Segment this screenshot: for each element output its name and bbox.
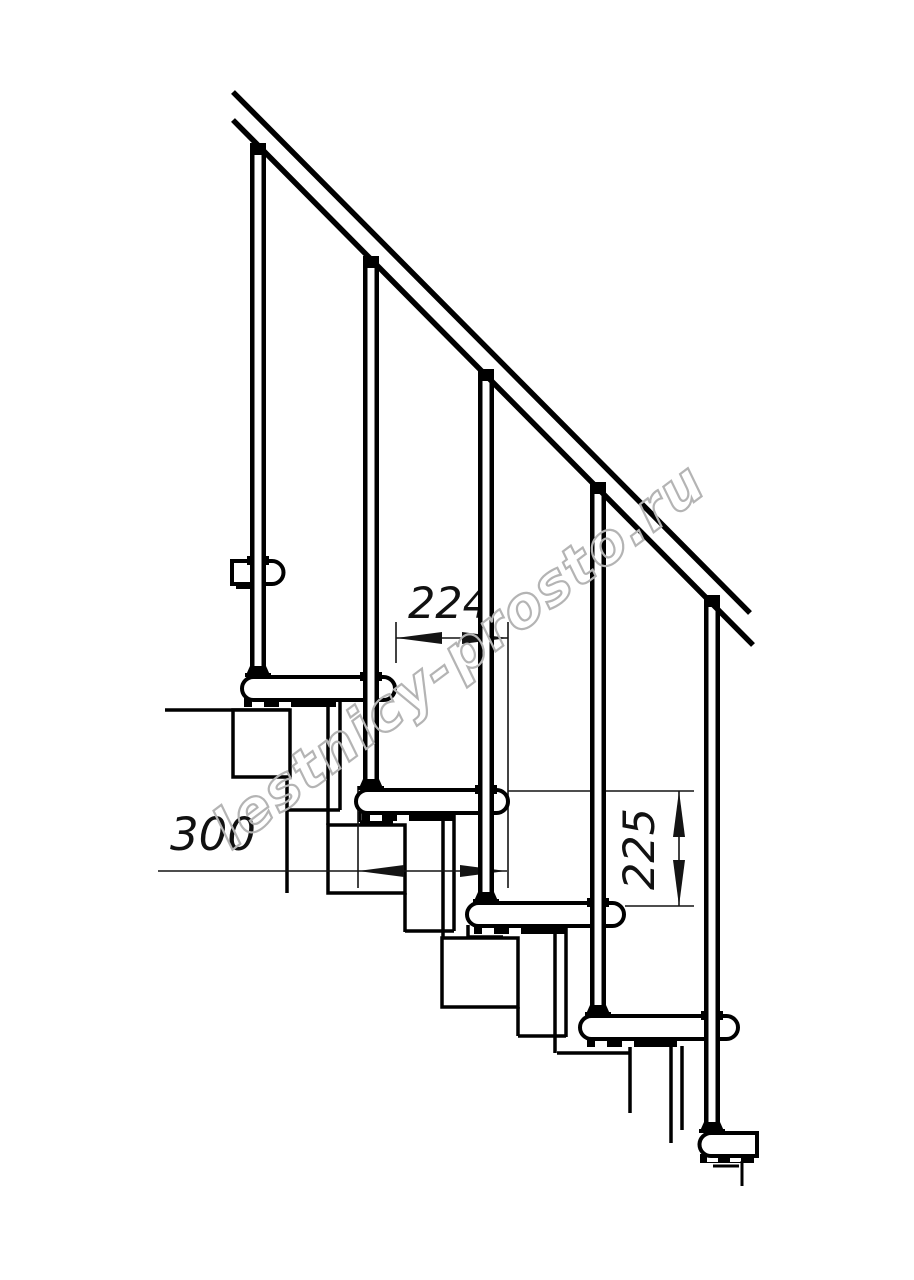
module-box-3 [442,938,518,1007]
tread-5-partial [700,1133,758,1156]
baluster-5 [699,595,725,1133]
arrow-up-icon [673,791,685,837]
dimension-label-rise: 225 [615,808,665,890]
module-box-2 [328,825,405,893]
bottom-step-edge [713,1161,742,1186]
staircase-drawing-page: 224 300 225 [0,0,914,1280]
baluster-1 [245,143,271,677]
staircase-drawing: 224 300 225 [0,0,914,1280]
arrow-down-icon [673,860,685,906]
